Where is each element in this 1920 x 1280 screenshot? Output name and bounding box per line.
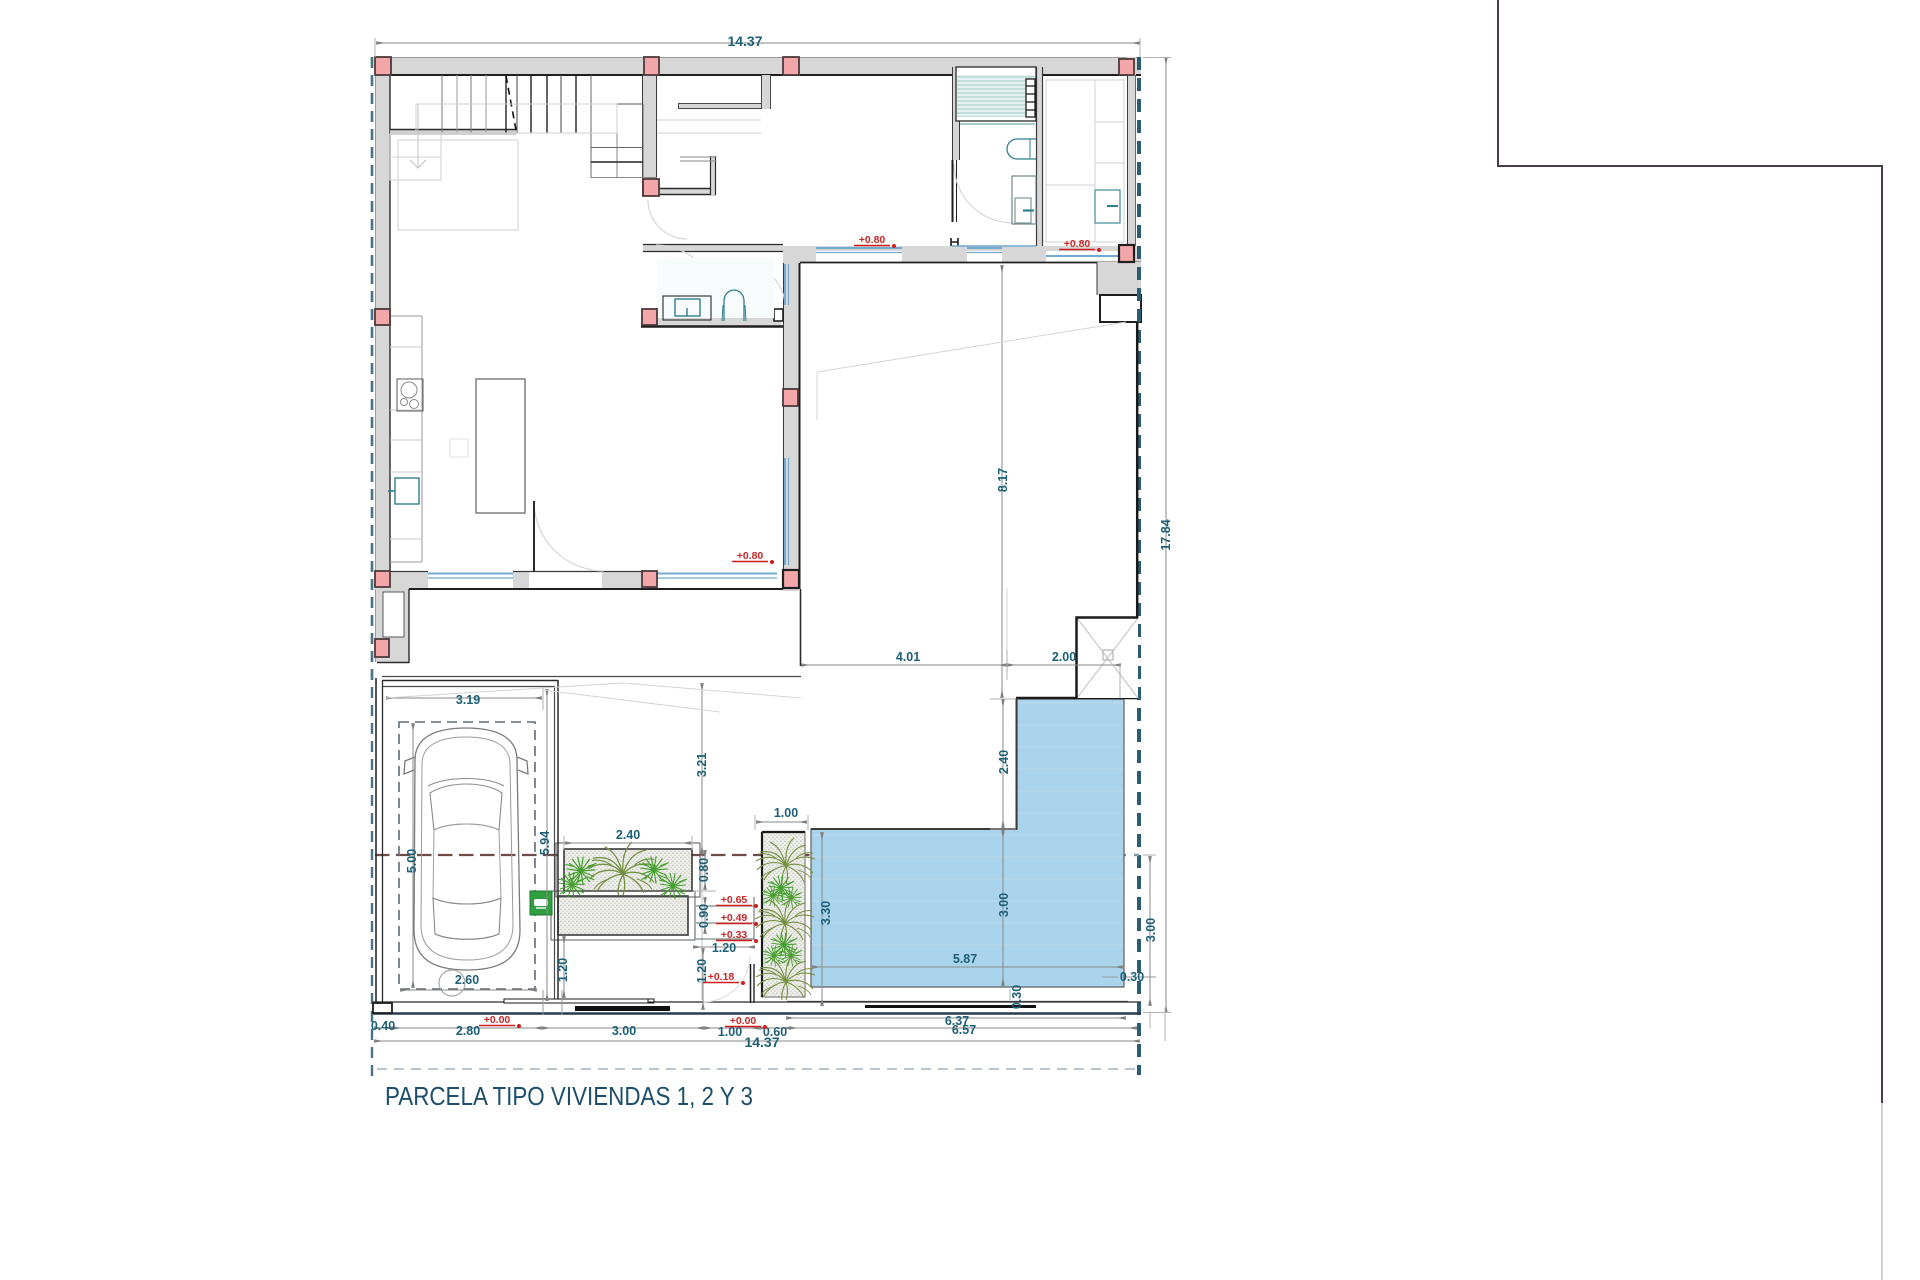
svg-text:1.00: 1.00 [774,806,798,820]
svg-text:8.17: 8.17 [996,468,1010,492]
svg-text:+0.18: +0.18 [708,971,735,983]
svg-text:0.80: 0.80 [697,858,711,882]
svg-text:+0.49: +0.49 [721,912,748,924]
svg-text:2.60: 2.60 [455,973,479,987]
svg-text:+0.33: +0.33 [721,929,748,941]
svg-text:0.30: 0.30 [1120,970,1144,984]
svg-text:17.84: 17.84 [1159,519,1173,550]
svg-text:+0.00: +0.00 [484,1014,511,1026]
svg-text:3.00: 3.00 [612,1024,636,1038]
svg-text:0.40: 0.40 [371,1019,395,1033]
svg-text:3.00: 3.00 [997,893,1011,917]
svg-text:2.00: 2.00 [1052,650,1076,664]
svg-text:1.20: 1.20 [556,958,570,982]
svg-text:+0.65: +0.65 [721,894,748,906]
svg-text:3.00: 3.00 [1144,918,1158,942]
svg-text:5.94: 5.94 [538,831,552,855]
svg-text:3.19: 3.19 [456,693,480,707]
svg-text:6.57: 6.57 [952,1023,976,1037]
svg-text:3.21: 3.21 [695,753,709,777]
svg-text:2.40: 2.40 [616,828,640,842]
svg-text:2.40: 2.40 [997,750,1011,774]
svg-text:0.90: 0.90 [697,904,711,928]
svg-text:2.80: 2.80 [456,1024,480,1038]
svg-text:+0.80: +0.80 [1064,238,1091,250]
svg-text:PARCELA TIPO VIVIENDAS 1, 2 Y: PARCELA TIPO VIVIENDAS 1, 2 Y 3 [385,1081,753,1111]
svg-text:5.87: 5.87 [953,952,977,966]
svg-text:14.37: 14.37 [744,1034,779,1050]
svg-text:4.01: 4.01 [896,650,920,664]
svg-text:+0.80: +0.80 [737,550,764,562]
svg-text:+0.00: +0.00 [730,1015,757,1027]
svg-text:3.30: 3.30 [819,901,833,925]
svg-text:0.30: 0.30 [1010,985,1024,1009]
svg-text:+0.80: +0.80 [859,234,886,246]
svg-text:5.00: 5.00 [405,849,419,873]
svg-text:1.20: 1.20 [712,941,736,955]
svg-text:14.37: 14.37 [727,33,762,49]
